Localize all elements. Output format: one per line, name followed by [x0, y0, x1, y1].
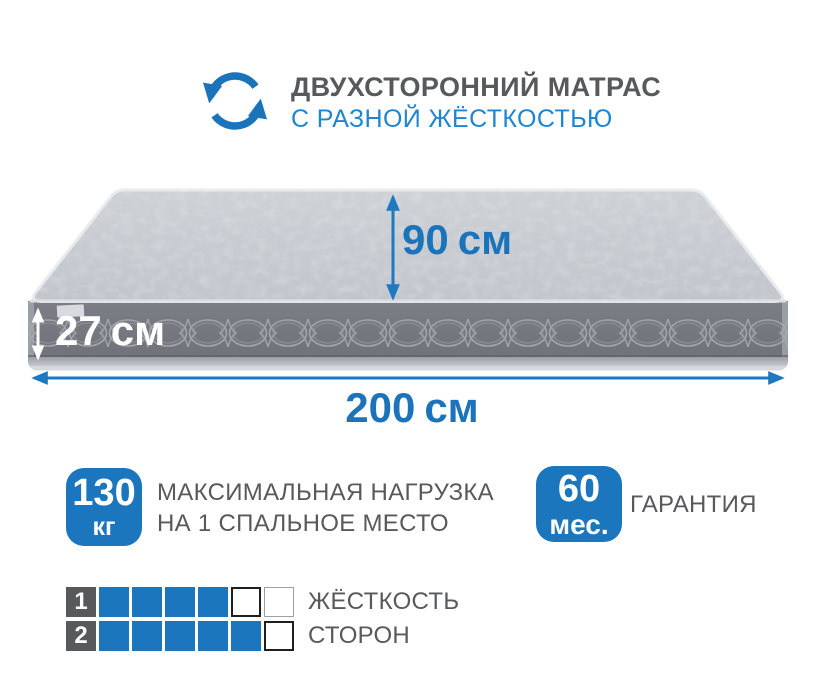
- warranty-value: 60: [558, 470, 600, 508]
- firmness-row-number: 2: [66, 621, 96, 651]
- warranty-badge: 60 мес.: [536, 466, 622, 542]
- rotate-arrows-icon: [203, 69, 267, 133]
- max-load-unit: кг: [93, 515, 116, 540]
- max-load-label: МАКСИМАЛЬНАЯ НАГРУЗКА НА 1 СПАЛЬНОЕ МЕСТ…: [157, 477, 494, 539]
- firmness-cell-filled: [165, 587, 195, 617]
- thickness-dimension-label: 27см: [55, 310, 165, 352]
- firmness-cell-empty: [231, 587, 261, 617]
- firmness-cells: 1: [66, 587, 294, 617]
- max-load-badge: 130 кг: [66, 468, 142, 546]
- firmness-cell-filled: [99, 621, 129, 651]
- firmness-cell-empty: [264, 587, 294, 617]
- firmness-cell-empty: [264, 621, 294, 651]
- firmness-cell-filled: [132, 587, 162, 617]
- height-value: 90: [402, 216, 449, 263]
- firmness-cell-filled: [198, 621, 228, 651]
- firmness-cell-filled: [198, 587, 228, 617]
- height-dimension-label: 90см: [402, 219, 512, 261]
- max-load-label-line1: МАКСИМАЛЬНАЯ НАГРУЗКА: [157, 477, 494, 508]
- max-load-value: 130: [72, 474, 135, 512]
- firmness-scale-label-line1: ЖЁСТКОСТЬ: [308, 588, 459, 616]
- width-dimension-label: 200см: [0, 387, 816, 429]
- height-unit: см: [458, 216, 512, 263]
- firmness-row: 2 СТОРОН: [66, 621, 459, 651]
- firmness-cell-filled: [231, 621, 261, 651]
- thickness-unit: см: [111, 307, 165, 354]
- firmness-cells: 2: [66, 621, 294, 651]
- page-title: ДВУХСТОРОННИЙ МАТРАС: [291, 72, 661, 103]
- width-value: 200: [345, 384, 415, 431]
- firmness-cell-filled: [99, 587, 129, 617]
- warranty-unit: мес.: [549, 511, 608, 539]
- mattress-illustration: [0, 160, 816, 395]
- width-unit: см: [424, 384, 478, 431]
- mattress-infographic: ДВУХСТОРОННИЙ МАТРАС С РАЗНОЙ ЖЁСТКОСТЬЮ: [0, 0, 816, 700]
- warranty-label: ГАРАНТИЯ: [630, 489, 757, 520]
- max-load-label-line2: НА 1 СПАЛЬНОЕ МЕСТО: [157, 508, 494, 539]
- thickness-value: 27: [55, 307, 102, 354]
- firmness-scale-label-line2: СТОРОН: [308, 622, 410, 650]
- firmness-cell-filled: [132, 621, 162, 651]
- firmness-row: 1 ЖЁСТКОСТЬ: [66, 587, 459, 617]
- firmness-row-number: 1: [66, 587, 96, 617]
- page-subtitle: С РАЗНОЙ ЖЁСТКОСТЬЮ: [291, 105, 613, 134]
- firmness-cell-filled: [165, 621, 195, 651]
- firmness-scale: 1 ЖЁСТКОСТЬ 2 СТОРОН: [66, 587, 459, 651]
